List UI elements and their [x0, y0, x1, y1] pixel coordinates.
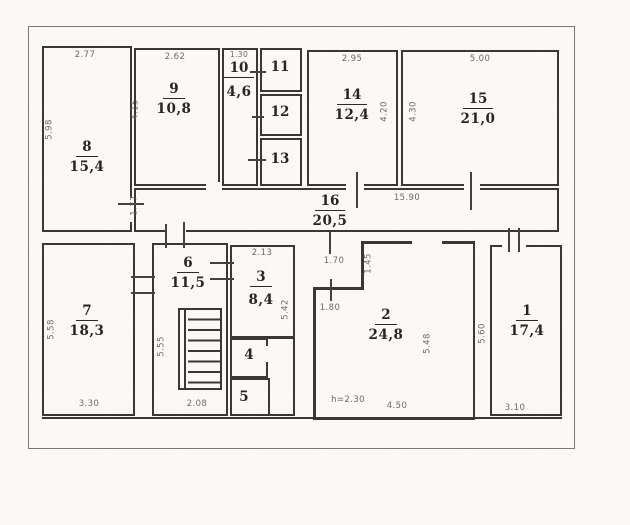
- dim-room2-right: 5.48: [423, 327, 434, 361]
- dimension-tick: [210, 262, 234, 264]
- room-number: 4: [244, 348, 253, 363]
- dim-room6-left: 5.55: [157, 330, 168, 364]
- corridor-16-label: 16 20,5: [308, 190, 352, 229]
- room-number: 10: [224, 61, 255, 78]
- dim-room2-height: h=2.30: [322, 395, 374, 406]
- door-gap-room1: [502, 244, 526, 249]
- room-number: 9: [163, 82, 184, 99]
- room-number: 8: [76, 140, 97, 157]
- room-number: 1: [516, 304, 537, 321]
- dim-room2-notch-side: 1.45: [364, 247, 375, 281]
- dim-room1-bottom: 3.10: [492, 403, 538, 414]
- room-9-label: 9 10,8: [144, 78, 204, 117]
- dim-room2-left: 1.80: [311, 303, 349, 314]
- dimension-tick: [508, 228, 510, 252]
- room-4-label: 4: [236, 344, 262, 363]
- dim-room2-notch-top: 1.70: [315, 256, 353, 267]
- room-number: 6: [177, 256, 198, 273]
- room-3-label: 3 8,4: [238, 266, 284, 308]
- room-12-label: 12: [263, 101, 297, 120]
- dim-room7-left: 5.58: [47, 313, 58, 347]
- door-gap-room9: [206, 182, 222, 192]
- room-number: 11: [271, 60, 290, 75]
- room-10-label: 10 4,6: [221, 57, 257, 100]
- dim-room2-bottom: 4.50: [374, 401, 420, 412]
- dimension-tick: [329, 232, 331, 254]
- door-gap-room15: [464, 183, 480, 192]
- room-number: 5: [239, 390, 248, 405]
- dim-room6-bottom: 2.08: [174, 399, 220, 410]
- dim-room9-left: 4.15: [131, 93, 142, 127]
- dim-corridor-length: 15.90: [382, 193, 432, 204]
- dim-room7-bottom: 3.30: [66, 399, 112, 410]
- room-area: 12,4: [324, 108, 380, 123]
- dimension-tick: [165, 224, 167, 248]
- stair-stringer: [184, 308, 186, 390]
- room-area: 8,4: [238, 293, 284, 308]
- room-area: 10,8: [144, 102, 204, 117]
- room-8-label: 8 15,4: [58, 136, 116, 175]
- dimension-tick: [131, 276, 155, 278]
- room-6-label: 6 11,5: [164, 252, 212, 291]
- floor-plan-drawing: 8 15,4 9 10,8 10 4,6 11 12 13 14 12,4 15…: [0, 0, 630, 525]
- dim-room8-left: 5.98: [45, 113, 56, 147]
- dim-room3-top: 2.13: [240, 248, 284, 259]
- room-2-right-wall: [473, 241, 476, 420]
- door-gap-room4: [264, 346, 270, 362]
- room-number: 16: [315, 194, 346, 211]
- dimension-tick: [210, 278, 234, 280]
- room-15-label: 15 21,0: [446, 88, 510, 127]
- room-area: 21,0: [446, 112, 510, 127]
- room-area: 17,4: [498, 324, 556, 339]
- building-bottom-wall: [42, 417, 562, 420]
- dimension-tick: [131, 292, 155, 294]
- room-13-label: 13: [263, 148, 297, 167]
- dim-room8-top: 2.77: [60, 50, 110, 61]
- dimension-tick: [470, 172, 472, 210]
- dim-room14-top: 2.95: [320, 54, 384, 65]
- room-2-notch-horizontal-wall: [313, 287, 363, 290]
- room-area: 20,5: [308, 214, 352, 229]
- room-7-label: 7 18,3: [58, 300, 116, 339]
- room-number: 15: [463, 92, 494, 109]
- room-number: 12: [271, 105, 290, 120]
- room-11-label: 11: [263, 56, 297, 75]
- room-number: 14: [337, 88, 368, 105]
- room-number: 2: [375, 308, 396, 325]
- dim-room10-top: 1.30: [220, 49, 258, 60]
- room-2-label: 2 24,8: [356, 304, 416, 343]
- dim-room3-right: 5.42: [281, 293, 292, 327]
- dim-room15-top: 5.00: [440, 54, 520, 65]
- room-area: 15,4: [58, 160, 116, 175]
- room-number: 7: [76, 304, 97, 321]
- dimension-tick: [183, 222, 185, 248]
- dim-room14-right: 4.20: [380, 95, 391, 129]
- room-area: 18,3: [58, 324, 116, 339]
- door-gap-room2: [412, 240, 442, 245]
- room-14-label: 14 12,4: [324, 84, 380, 123]
- dim-room1-left: 5.60: [478, 317, 489, 351]
- room-number: 13: [271, 152, 290, 167]
- dim-room9-top: 2.62: [150, 52, 200, 63]
- dimension-tick: [356, 172, 358, 208]
- stair-treads: [188, 310, 220, 388]
- room-number: 3: [250, 270, 271, 287]
- room-1-label: 1 17,4: [498, 300, 556, 339]
- room-9: [134, 48, 220, 186]
- room-area: 4,6: [221, 85, 257, 100]
- dimension-tick: [330, 279, 332, 301]
- room-area: 11,5: [164, 276, 212, 291]
- floor-plan-page: 8 15,4 9 10,8 10 4,6 11 12 13 14 12,4 15…: [0, 0, 630, 525]
- room-5-label: 5: [231, 386, 257, 405]
- dim-room15-left: 4.30: [409, 95, 420, 129]
- room-area: 24,8: [356, 328, 416, 343]
- dim-corridor-left: 1.77: [130, 189, 141, 223]
- dimension-tick: [518, 228, 520, 252]
